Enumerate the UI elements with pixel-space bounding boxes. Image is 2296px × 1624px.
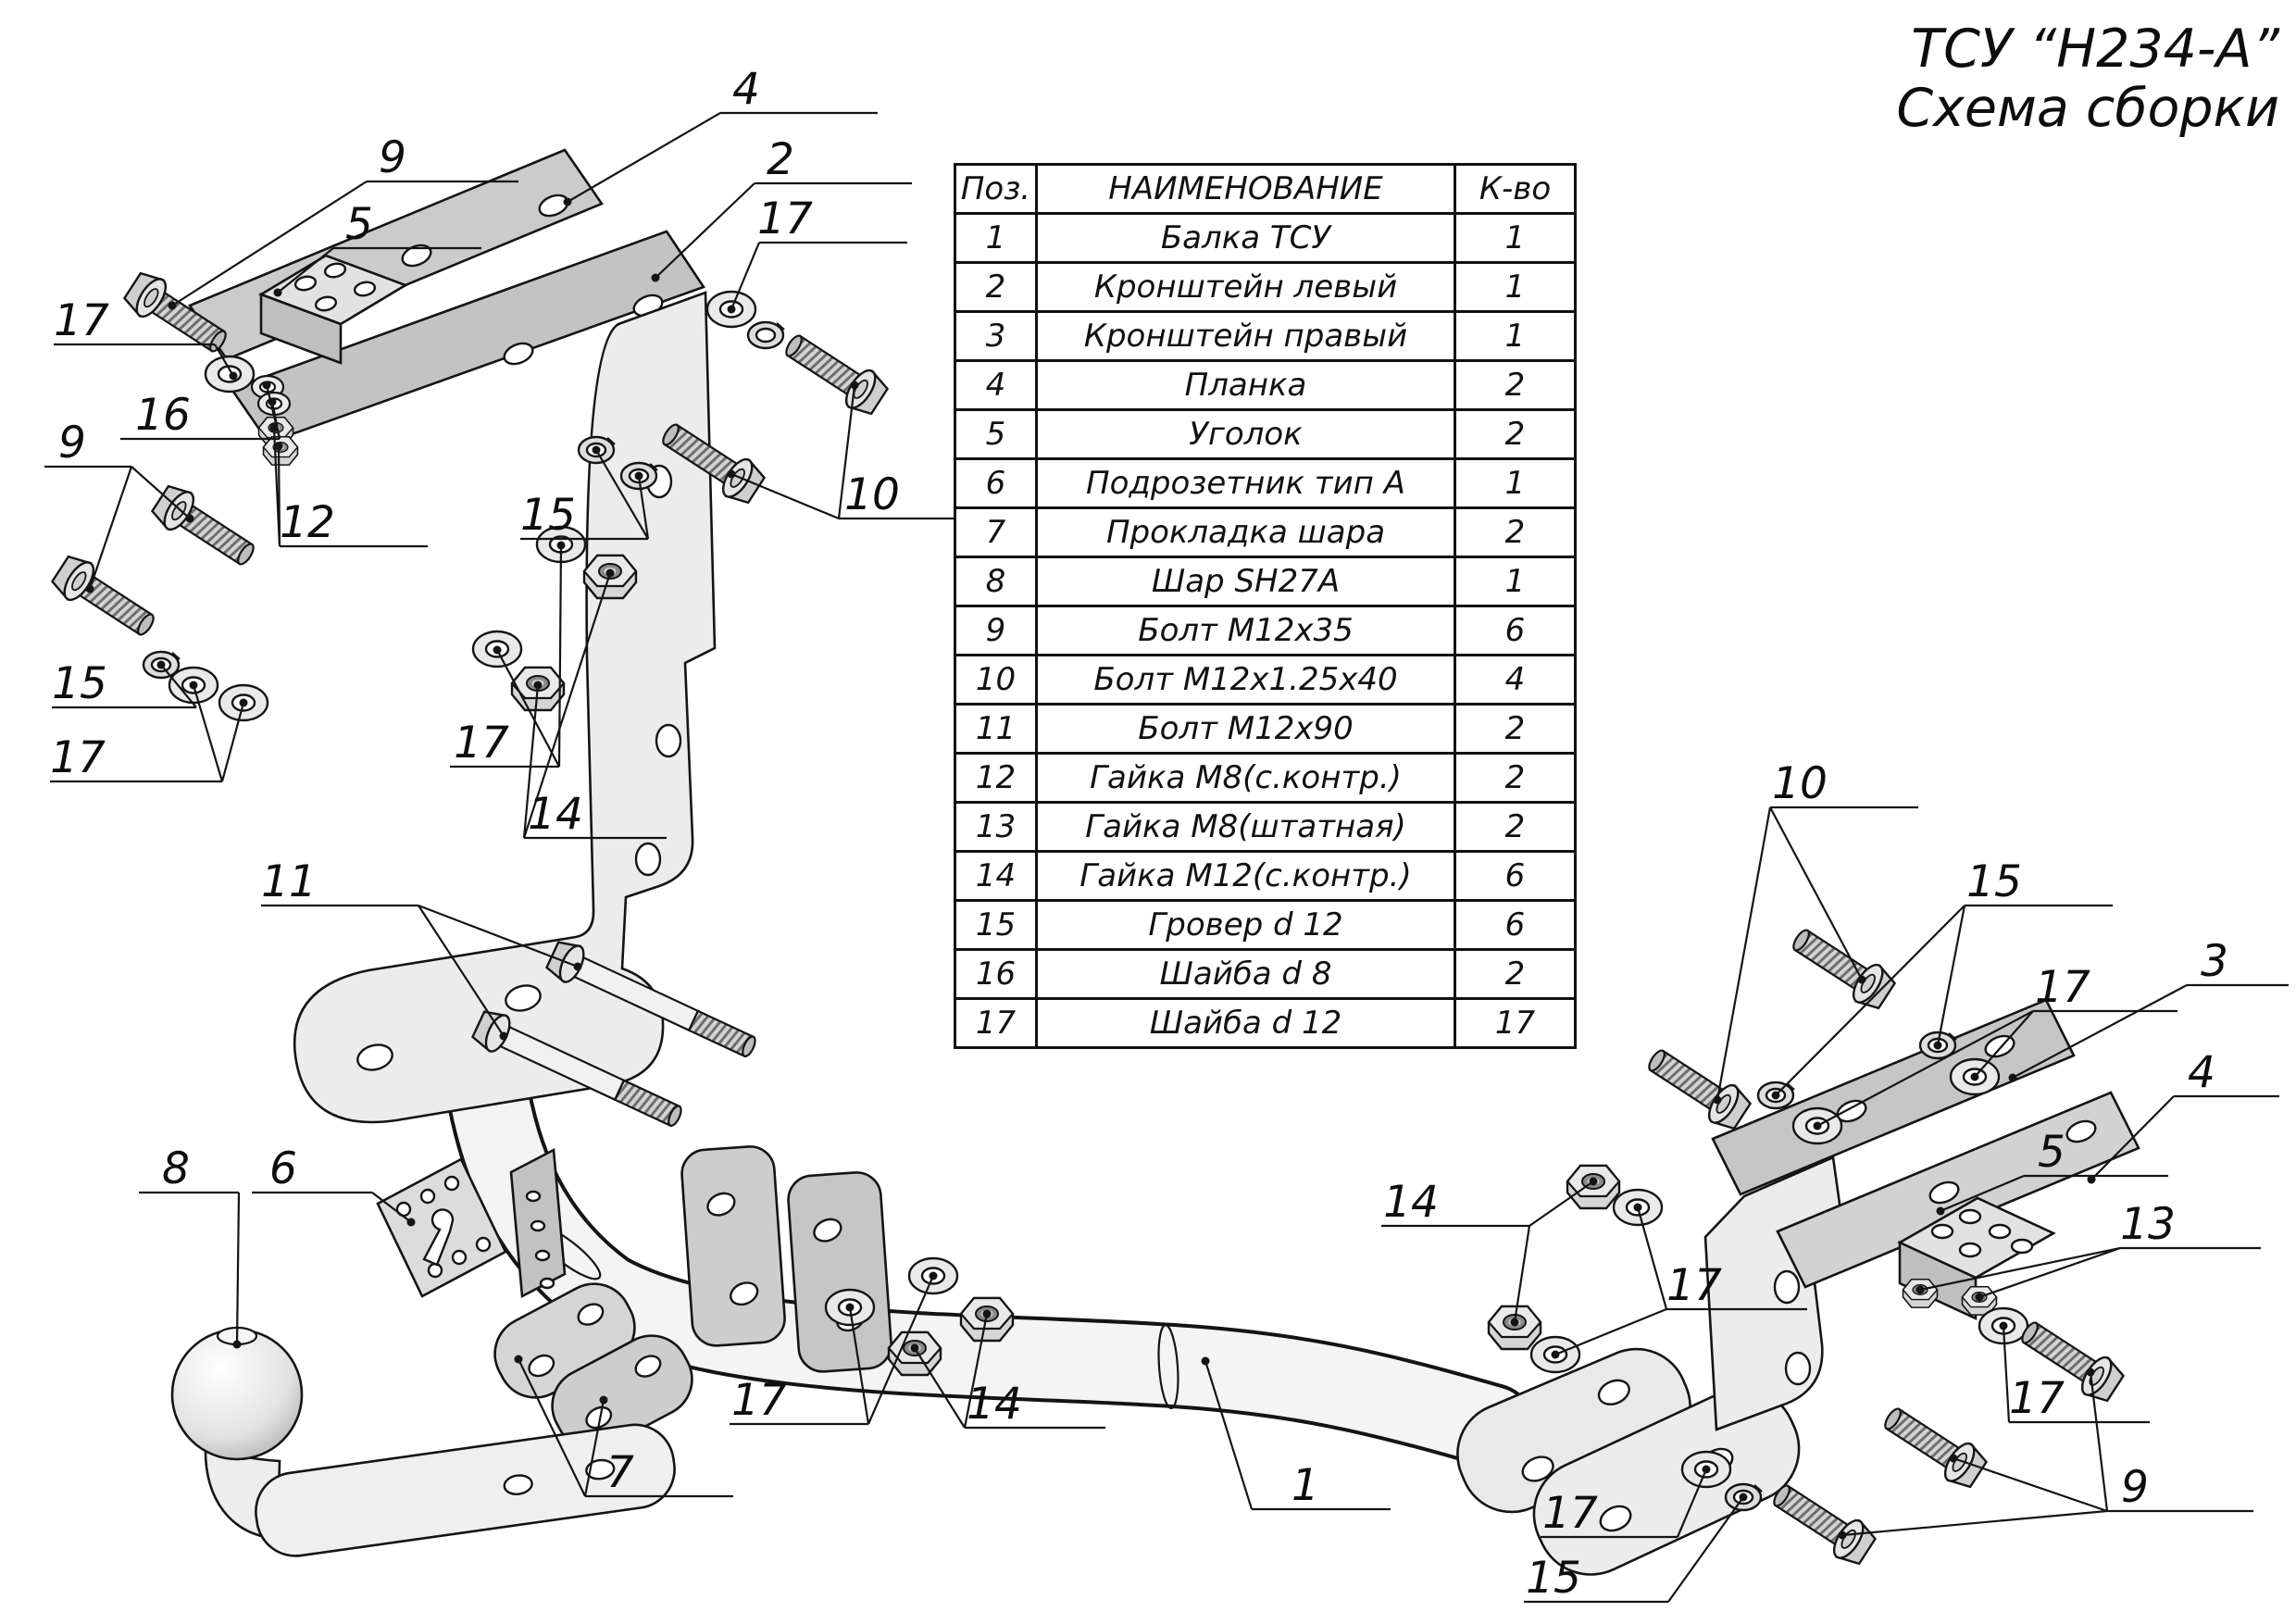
cell-qty: 6 xyxy=(1455,901,1576,950)
callout-dot xyxy=(983,1310,992,1318)
nut-m12 xyxy=(1567,1166,1619,1208)
callout-label: 3 xyxy=(2201,936,2228,987)
callout-label: 15 xyxy=(520,490,576,541)
callout-dot xyxy=(407,1218,416,1227)
cell-qty: 2 xyxy=(1455,803,1576,852)
cell-qty: 1 xyxy=(1455,214,1576,263)
callout-dot xyxy=(500,1032,508,1041)
nut-m8 xyxy=(264,437,298,465)
callout-8: 8 xyxy=(139,1143,242,1349)
parts-table-row: 1Балка ТСУ1 xyxy=(955,214,1576,263)
callout-leader xyxy=(1842,1511,2107,1535)
callout-label: 15 xyxy=(1526,1553,1581,1604)
cell-qty: 1 xyxy=(1455,312,1576,361)
cell-name: Уголок xyxy=(1037,410,1455,459)
callout-dot xyxy=(268,398,277,406)
callout-label: 8 xyxy=(162,1143,190,1194)
callout-label: 5 xyxy=(2038,1127,2065,1178)
callout-label: 2 xyxy=(767,134,794,185)
callout-17: 17 xyxy=(728,194,908,314)
drawing-title: ТСУ “Н234-А” Схема сборки xyxy=(1761,20,2279,139)
callout-dot xyxy=(1950,1455,1958,1463)
callout-dot xyxy=(186,515,194,523)
callout-label: 7 xyxy=(606,1447,634,1498)
callout-dot xyxy=(493,646,502,655)
cell-qty: 6 xyxy=(1455,852,1576,901)
callout-leader xyxy=(559,545,561,767)
cell-qty: 2 xyxy=(1455,410,1576,459)
callout-14: 14 xyxy=(1381,1177,1598,1327)
callout-leader xyxy=(655,183,755,278)
cell-name: Болт М12х90 xyxy=(1037,705,1455,754)
callout-dot xyxy=(1714,1096,1722,1105)
beam-tab xyxy=(680,1145,787,1347)
parts-table-row: 5Уголок2 xyxy=(955,410,1576,459)
cell-name: Шар SH27A xyxy=(1037,557,1455,606)
title-line-subtitle: Схема сборки xyxy=(1761,80,2279,139)
callout-dot xyxy=(230,372,238,381)
callout-dot xyxy=(1590,1178,1598,1186)
cell-name: Болт М12х1.25х40 xyxy=(1037,656,1455,705)
cell-pos: 11 xyxy=(955,705,1037,754)
callout-dot xyxy=(86,585,94,593)
parts-table-row: 12Гайка М8(с.контр.)2 xyxy=(955,754,1576,803)
bolt-m12x40 xyxy=(1785,919,1898,1013)
cell-qty: 1 xyxy=(1455,459,1576,508)
callout-dot xyxy=(274,289,282,297)
callout-dot xyxy=(600,1396,608,1405)
callout-label: 17 xyxy=(757,194,813,244)
callout-dot xyxy=(1703,1466,1711,1474)
cell-qty: 1 xyxy=(1455,263,1576,312)
callout-label: 17 xyxy=(50,732,106,783)
cell-pos: 10 xyxy=(955,656,1037,705)
parts-table-row: 3Кронштейн правый1 xyxy=(955,312,1576,361)
cell-pos: 5 xyxy=(955,410,1037,459)
cell-qty: 4 xyxy=(1455,656,1576,705)
callout-dot xyxy=(1511,1318,1519,1327)
parts-table-row: 8Шар SH27A1 xyxy=(955,557,1576,606)
callout-label: 4 xyxy=(2188,1047,2215,1098)
callout-dot xyxy=(1937,1207,1945,1216)
callout-dot xyxy=(233,1341,242,1349)
cell-name: Гровер d 12 xyxy=(1037,901,1455,950)
cell-name: Подрозетник тип А xyxy=(1037,459,1455,508)
callout-label: 17 xyxy=(54,295,109,346)
cell-qty: 1 xyxy=(1455,557,1576,606)
cell-name: Прокладка шара xyxy=(1037,508,1455,557)
callout-label: 17 xyxy=(2009,1373,2065,1424)
callout-leader xyxy=(1717,807,1770,1100)
cell-pos: 7 xyxy=(955,508,1037,557)
parts-table-row: 7Прокладка шара2 xyxy=(955,508,1576,557)
cell-name: Болт М12х35 xyxy=(1037,606,1455,656)
cell-qty: 2 xyxy=(1455,950,1576,999)
callout-dot xyxy=(2000,1322,2008,1330)
cell-pos: 8 xyxy=(955,557,1037,606)
cell-name: Гайка М8(штатная) xyxy=(1037,803,1455,852)
cell-qty: 17 xyxy=(1455,999,1576,1048)
cell-qty: 2 xyxy=(1455,754,1576,803)
callout-dot xyxy=(515,1355,523,1364)
callout-dot xyxy=(1916,1286,1925,1294)
callout-dot xyxy=(270,424,279,432)
title-line-model: ТСУ “Н234-А” xyxy=(1761,20,2279,80)
cell-pos: 13 xyxy=(955,803,1037,852)
cell-qty: 2 xyxy=(1455,361,1576,410)
nut-m12 xyxy=(889,1332,941,1375)
callout-dot xyxy=(930,1272,938,1280)
bolt-m12x35 xyxy=(49,551,162,644)
callout-label: 17 xyxy=(1542,1488,1598,1539)
parts-table-row: 17Шайба d 1217 xyxy=(955,999,1576,1048)
callout-label: 14 xyxy=(528,789,583,840)
cell-pos: 12 xyxy=(955,754,1037,803)
callout-dot xyxy=(1202,1357,1210,1366)
callout-leader xyxy=(568,113,720,202)
callout-dot xyxy=(593,446,601,455)
callout-label: 9 xyxy=(379,132,406,183)
callout-leader xyxy=(237,1193,239,1344)
callout-dot xyxy=(728,306,736,314)
parts-table-row: 9Болт М12х356 xyxy=(955,606,1576,656)
callout-dot xyxy=(1971,1073,1979,1081)
callout-dot xyxy=(574,963,582,971)
cell-pos: 6 xyxy=(955,459,1037,508)
callout-label: 5 xyxy=(345,199,373,250)
callout-label: 9 xyxy=(2121,1462,2149,1513)
cell-name: Планка xyxy=(1037,361,1455,410)
callout-dot xyxy=(851,381,859,390)
callout-label: 14 xyxy=(967,1379,1022,1430)
callout-dot xyxy=(1934,1042,1942,1050)
callout-10: 10 xyxy=(1714,758,1919,1105)
callout-dot xyxy=(263,381,271,390)
callout-dot xyxy=(275,443,283,451)
callout-4: 4 xyxy=(564,64,879,206)
callout-dot xyxy=(1552,1351,1560,1359)
bolt-m12x40 xyxy=(778,325,891,418)
cell-name: Балка ТСУ xyxy=(1037,214,1455,263)
callout-leader xyxy=(1555,1309,1666,1355)
parts-table-row: 13Гайка М8(штатная)2 xyxy=(955,803,1576,852)
callout-label: 10 xyxy=(1772,758,1828,809)
callout-leader xyxy=(1953,1458,2107,1511)
callout-dot xyxy=(652,274,660,282)
parts-table-row: 2Кронштейн левый1 xyxy=(955,263,1576,312)
cell-pos: 3 xyxy=(955,312,1037,361)
bolt-m12x35 xyxy=(149,481,262,574)
parts-table: Поз. НАИМЕНОВАНИЕ К-во 1Балка ТСУ12Кронш… xyxy=(954,163,1577,1049)
callout-dot xyxy=(635,472,643,481)
grover-d12 xyxy=(748,322,784,348)
callout-label: 12 xyxy=(280,497,335,548)
nut-m12 xyxy=(961,1298,1013,1341)
cell-name: Шайба d 8 xyxy=(1037,950,1455,999)
cell-qty: 6 xyxy=(1455,606,1576,656)
callout-dot xyxy=(1839,1531,1847,1540)
callout-dot xyxy=(2087,1368,2095,1377)
parts-table-row: 10Болт М12х1.25х404 xyxy=(955,656,1576,705)
callout-dot xyxy=(190,681,198,690)
bolt-m12x40 xyxy=(1641,1040,1753,1133)
callout-dot xyxy=(2009,1074,2017,1082)
callout-label: 4 xyxy=(732,64,760,115)
cell-pos: 16 xyxy=(955,950,1037,999)
parts-table-row: 6Подрозетник тип А1 xyxy=(955,459,1576,508)
callout-label: 17 xyxy=(2035,962,2090,1013)
parts-table-row: 16Шайба d 82 xyxy=(955,950,1576,999)
cell-name: Гайка М8(с.контр.) xyxy=(1037,754,1455,803)
callout-label: 11 xyxy=(261,856,317,907)
callout-dot xyxy=(240,699,248,707)
callout-dot xyxy=(168,302,177,310)
callout-label: 17 xyxy=(454,718,509,768)
callout-label: 17 xyxy=(1666,1260,1722,1311)
cell-name: Гайка М12(с.контр.) xyxy=(1037,852,1455,901)
header-name: НАИМЕНОВАНИЕ xyxy=(1037,165,1455,214)
cell-qty: 2 xyxy=(1455,705,1576,754)
callout-label: 13 xyxy=(2120,1199,2176,1250)
beam-tab xyxy=(787,1171,893,1373)
callout-dot xyxy=(1858,976,1866,984)
callout-dot xyxy=(157,661,166,669)
cell-pos: 9 xyxy=(955,606,1037,656)
bolt-m12x35 xyxy=(1766,1475,1878,1568)
parts-table-row: 4Планка2 xyxy=(955,361,1576,410)
callout-label: 1 xyxy=(1291,1460,1319,1511)
cell-pos: 15 xyxy=(955,901,1037,950)
callout-dot xyxy=(846,1304,855,1312)
cell-name: Кронштейн левый xyxy=(1037,263,1455,312)
callout-dot xyxy=(1634,1204,1642,1212)
callout-leader xyxy=(1938,906,1965,1045)
assembly-drawing-sheet: 4921751716912151015171714118617147110151… xyxy=(0,0,2296,1624)
callout-label: 15 xyxy=(1966,856,2022,907)
callout-dot xyxy=(557,542,566,550)
callout-label: 10 xyxy=(844,469,900,520)
parts-table-row: 14Гайка М12(с.контр.)6 xyxy=(955,852,1576,901)
nut-m12 xyxy=(1489,1306,1541,1349)
callout-dot xyxy=(1814,1122,1822,1131)
cell-pos: 4 xyxy=(955,361,1037,410)
header-qty: К-во xyxy=(1455,165,1576,214)
callout-label: 16 xyxy=(135,390,191,441)
callout-label: 14 xyxy=(1383,1177,1439,1228)
callout-dot xyxy=(1772,1092,1780,1100)
callout-dot xyxy=(564,198,572,206)
callout-dot xyxy=(606,569,615,578)
callout-dot xyxy=(1740,1493,1748,1502)
cell-name: Шайба d 12 xyxy=(1037,999,1455,1048)
cell-pos: 14 xyxy=(955,852,1037,901)
cell-qty: 2 xyxy=(1455,508,1576,557)
callout-label: 17 xyxy=(731,1375,787,1426)
bolt-m12x35 xyxy=(1877,1398,1990,1492)
parts-table-row: 15Гровер d 126 xyxy=(955,901,1576,950)
parts-table-header-row: Поз. НАИМЕНОВАНИЕ К-во xyxy=(955,165,1576,214)
cell-pos: 2 xyxy=(955,263,1037,312)
header-pos: Поз. xyxy=(955,165,1037,214)
callout-dot xyxy=(728,470,736,479)
cell-name: Кронштейн правый xyxy=(1037,312,1455,361)
callout-label: 6 xyxy=(269,1143,297,1194)
callout-dot xyxy=(911,1344,919,1353)
cell-pos: 17 xyxy=(955,999,1037,1048)
callout-label: 9 xyxy=(58,418,86,468)
callout-leader xyxy=(90,467,131,589)
callout-dot xyxy=(534,681,543,690)
parts-table-row: 11Болт М12х902 xyxy=(955,705,1576,754)
callout-dot xyxy=(1976,1293,1984,1302)
callout-label: 15 xyxy=(52,658,107,709)
cell-pos: 1 xyxy=(955,214,1037,263)
